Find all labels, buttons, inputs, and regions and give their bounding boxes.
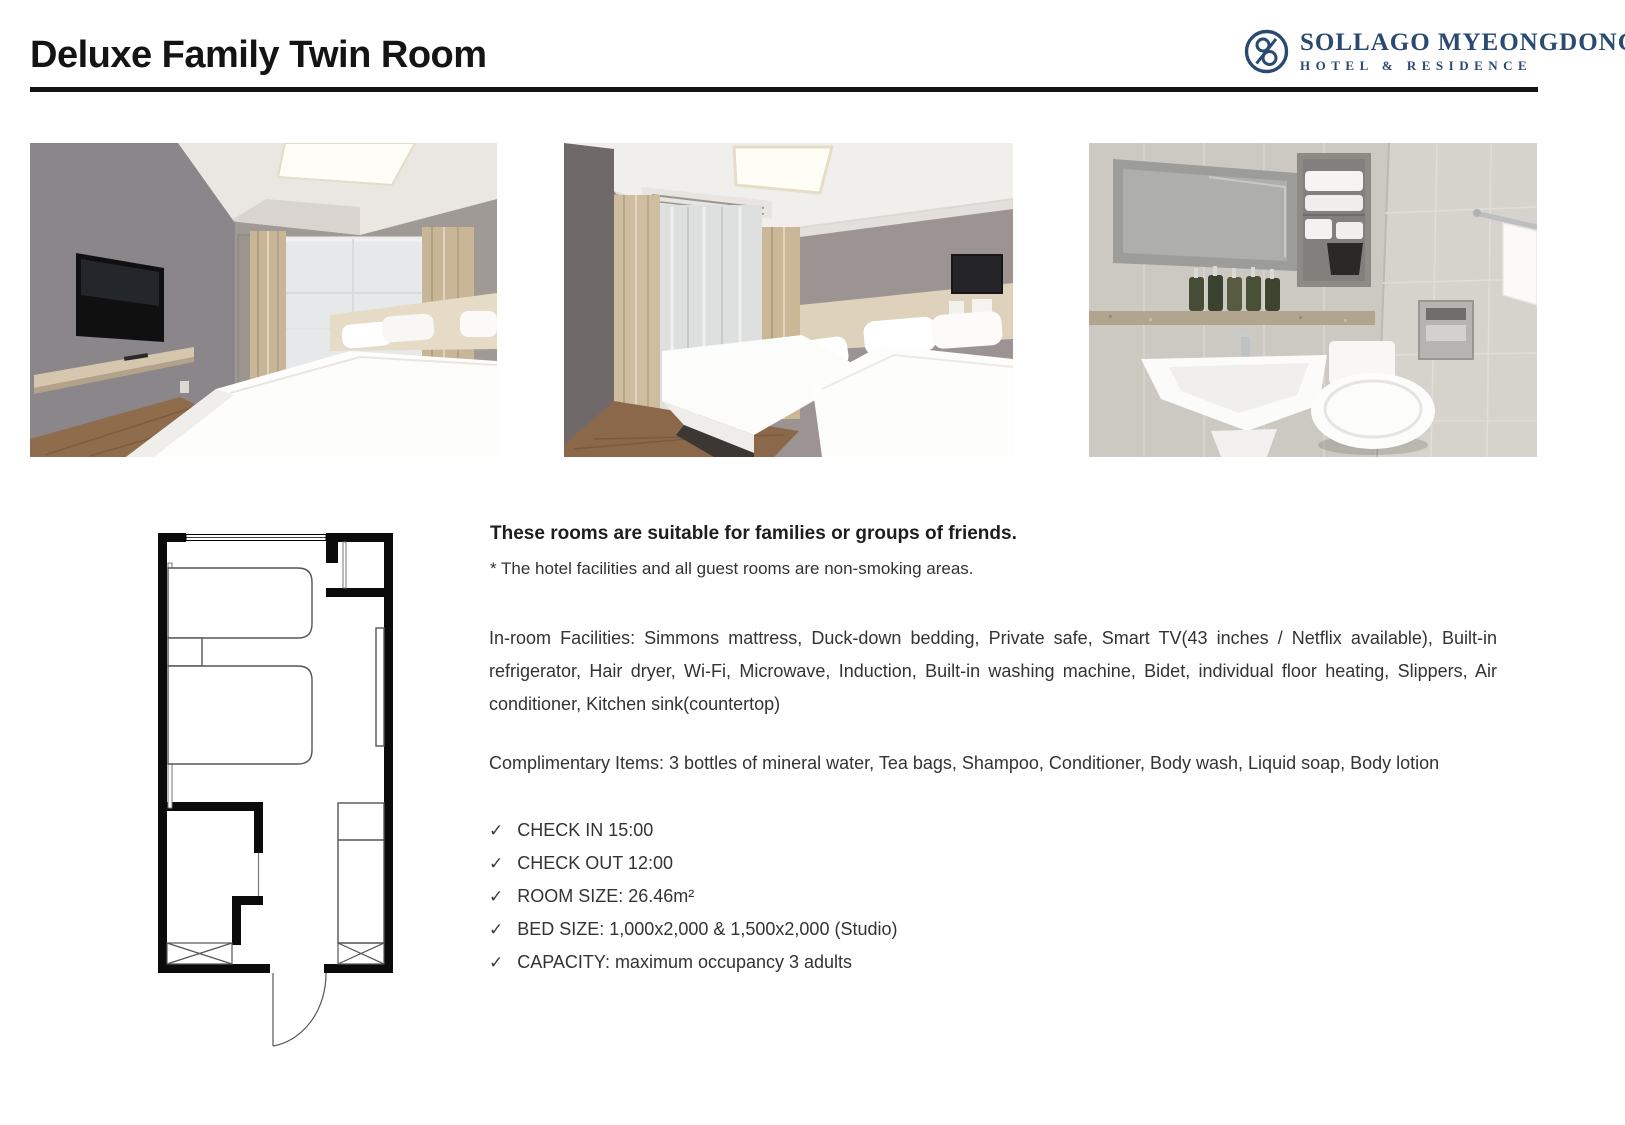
checklist-item-capacity: ✓ CAPACITY: maximum occupancy 3 adults: [489, 946, 897, 979]
hotel-logo: SOLLAGO MYEONGDONG HOTEL & RESIDENCE: [1243, 28, 1625, 75]
photo-bedroom-beds: [564, 143, 1013, 457]
title-underline: [30, 87, 1538, 92]
checklist-label: CAPACITY: maximum occupancy 3 adults: [517, 952, 852, 973]
hotel-subtitle: HOTEL & RESIDENCE: [1300, 59, 1625, 73]
check-icon: ✓: [489, 854, 503, 874]
page-title: Deluxe Family Twin Room: [30, 34, 487, 77]
checklist-item-bed-size: ✓ BED SIZE: 1,000x2,000 & 1,500x2,000 (S…: [489, 913, 897, 946]
facilities-paragraph: In-room Facilities: Simmons mattress, Du…: [489, 622, 1497, 721]
headline: These rooms are suitable for families or…: [490, 523, 1017, 545]
hotel-name: SOLLAGO MYEONGDONG: [1300, 30, 1625, 56]
checklist-item-check-in: ✓ CHECK IN 15:00: [489, 814, 897, 847]
photo-bathroom: [1089, 143, 1537, 457]
non-smoking-note: * The hotel facilities and all guest roo…: [490, 559, 974, 579]
room-info-page: Deluxe Family Twin Room SOLLAGO MYEONGDO…: [0, 0, 1625, 1125]
hotel-logo-text: SOLLAGO MYEONGDONG HOTEL & RESIDENCE: [1300, 30, 1625, 73]
room-floor-plan: [152, 518, 397, 1063]
check-icon: ✓: [489, 821, 503, 841]
checklist-item-check-out: ✓ CHECK OUT 12:00: [489, 847, 897, 880]
checklist-label: ROOM SIZE: 26.46m²: [517, 886, 694, 907]
checklist-label: BED SIZE: 1,000x2,000 & 1,500x2,000 (Stu…: [517, 919, 897, 940]
checklist-label: CHECK OUT 12:00: [517, 853, 673, 874]
checklist-label: CHECK IN 15:00: [517, 820, 653, 841]
checklist-item-room-size: ✓ ROOM SIZE: 26.46m²: [489, 880, 897, 913]
check-icon: ✓: [489, 920, 503, 940]
hotel-logo-icon: [1243, 28, 1290, 75]
room-checklist: ✓ CHECK IN 15:00 ✓ CHECK OUT 12:00 ✓ ROO…: [489, 814, 897, 979]
check-icon: ✓: [489, 953, 503, 973]
complimentary-paragraph: Complimentary Items: 3 bottles of minera…: [489, 753, 1519, 774]
photo-bedroom-with-tv: [30, 143, 497, 457]
check-icon: ✓: [489, 887, 503, 907]
